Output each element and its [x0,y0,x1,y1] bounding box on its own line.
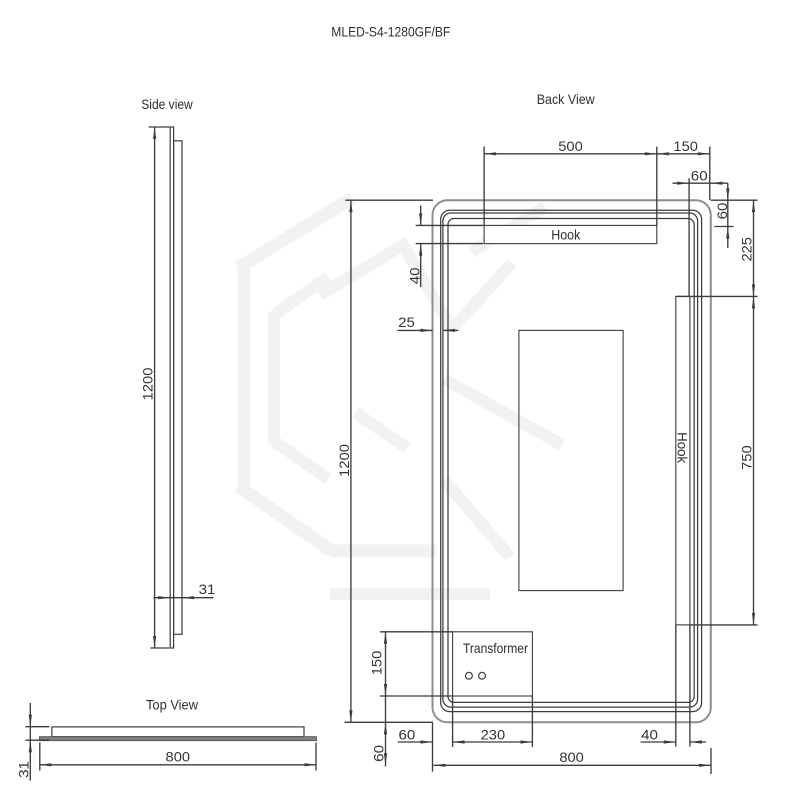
svg-text:150: 150 [673,138,698,154]
svg-text:40: 40 [641,726,658,742]
svg-text:Side view: Side view [141,96,193,112]
svg-text:Top View: Top View [146,696,199,712]
svg-text:150: 150 [369,651,385,676]
svg-text:Transformer: Transformer [463,640,528,656]
svg-text:31: 31 [16,761,32,778]
svg-text:60: 60 [399,726,416,742]
svg-text:Hook: Hook [551,227,581,243]
svg-text:225: 225 [738,237,754,262]
svg-text:230: 230 [481,726,506,742]
svg-text:60: 60 [691,167,708,183]
svg-text:Hook: Hook [675,432,691,464]
svg-text:800: 800 [166,749,191,765]
svg-text:1200: 1200 [140,367,156,400]
svg-text:1200: 1200 [336,444,352,477]
svg-text:40: 40 [407,267,423,284]
svg-text:Back View: Back View [537,91,596,107]
svg-text:MLED-S4-1280GF/BF: MLED-S4-1280GF/BF [331,23,450,39]
svg-text:25: 25 [398,314,415,330]
svg-text:60: 60 [371,745,387,762]
svg-text:750: 750 [738,445,754,470]
svg-text:800: 800 [559,749,584,765]
svg-text:500: 500 [558,138,583,154]
svg-text:60: 60 [714,202,730,219]
svg-text:31: 31 [199,581,216,597]
